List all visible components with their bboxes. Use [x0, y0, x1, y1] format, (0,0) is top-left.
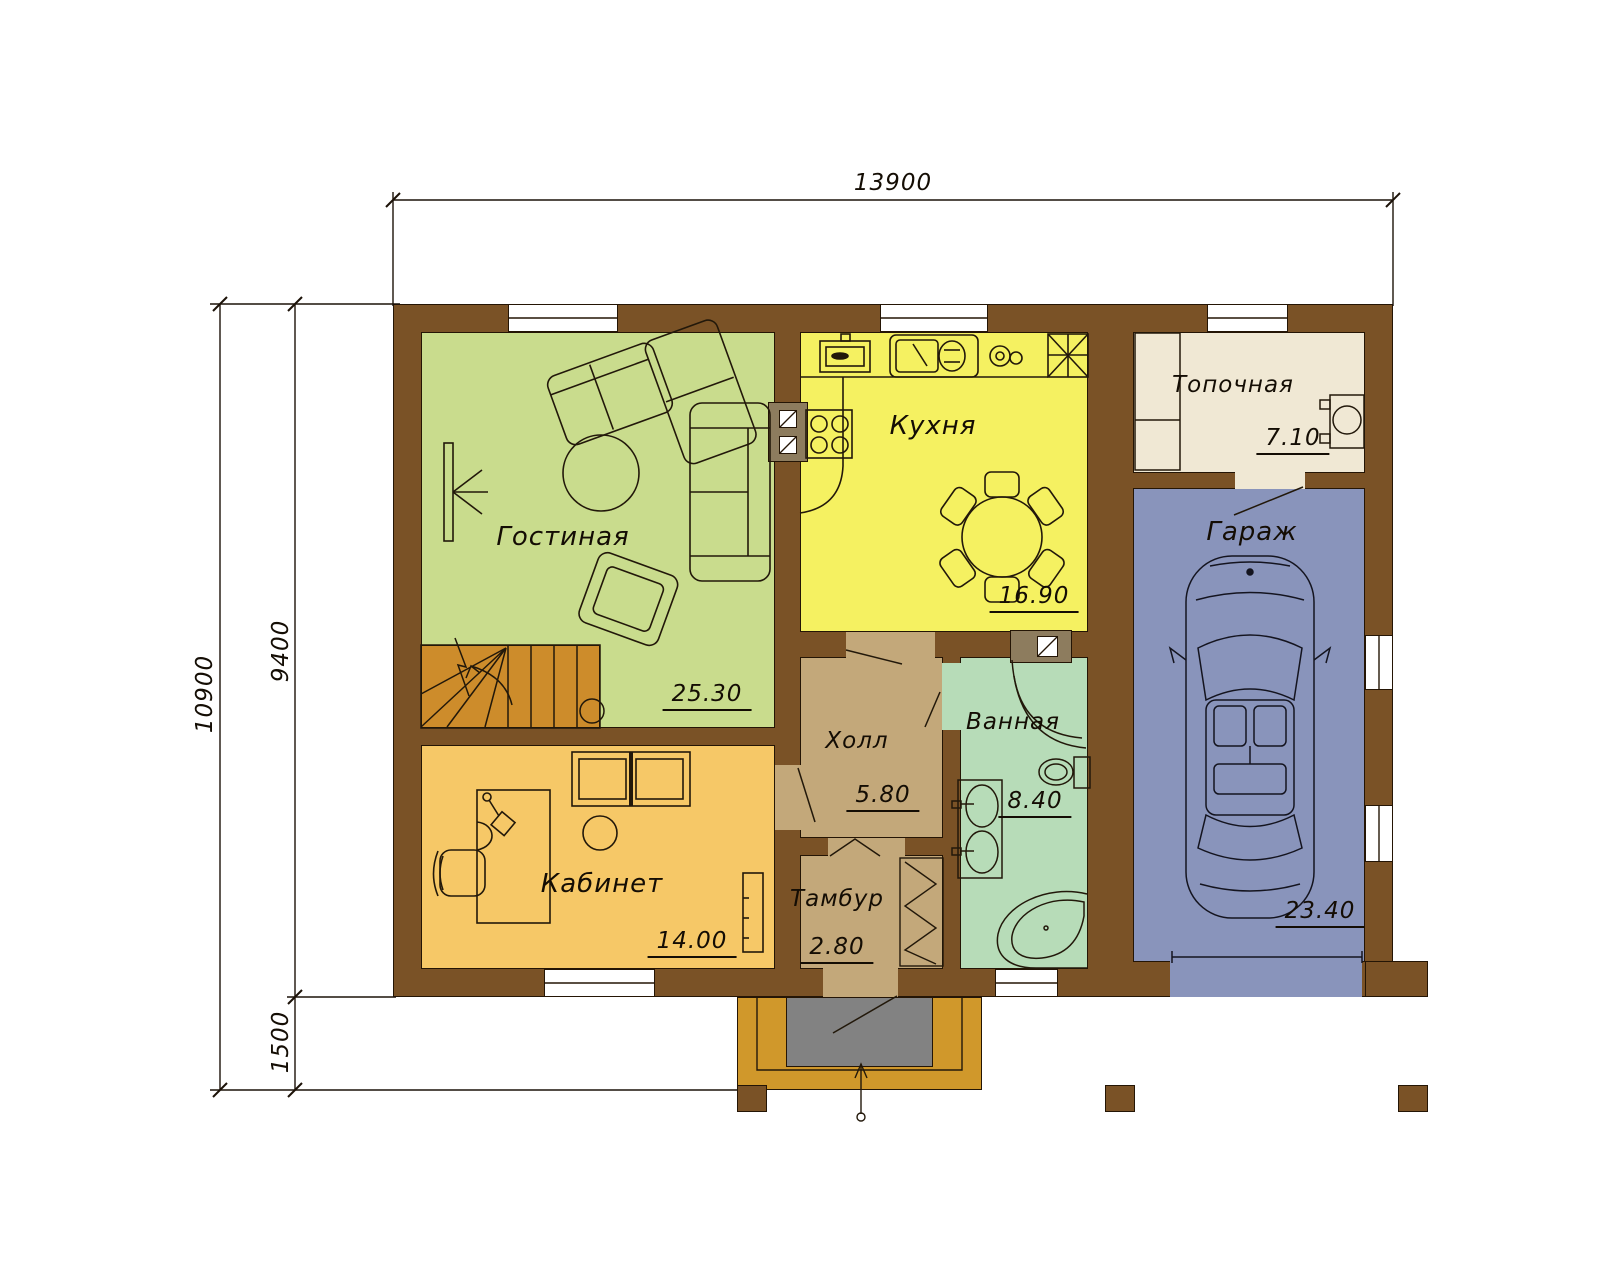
area-boiler: 7.10: [1256, 425, 1329, 451]
area-garage: 23.40: [1276, 898, 1365, 924]
area-value: 14.00: [648, 928, 737, 958]
staircase-floor: [421, 645, 600, 728]
window-boiler: [1207, 304, 1288, 332]
room-garage-floor: [1133, 488, 1365, 962]
label-boiler: Топочная: [1172, 372, 1294, 398]
area-bathroom: 8.40: [998, 788, 1071, 814]
area-value: 7.10: [1256, 425, 1329, 455]
area-office: 14.00: [648, 928, 737, 954]
room-boiler-floor: [1133, 332, 1365, 473]
dim-porch-depth: 1500: [268, 1011, 294, 1074]
label-living: Гостиная: [496, 522, 629, 552]
dim-height-main: 9400: [268, 620, 294, 683]
floor-plan-drawing: 13900 10900 9400 1500 Гостиная 25.30 Кух…: [0, 0, 1600, 1280]
window-kitchen: [880, 304, 988, 332]
window-living: [508, 304, 618, 332]
vent-grate-icon: [1037, 636, 1058, 657]
area-value: 16.90: [990, 583, 1079, 613]
label-kitchen: Кухня: [890, 411, 977, 441]
window-bathroom: [995, 969, 1058, 997]
door-hall-office: [775, 765, 801, 830]
dim-height-total: 10900: [192, 655, 218, 733]
area-value: 23.40: [1276, 898, 1365, 928]
door-boiler-garage: [1235, 472, 1305, 489]
porch-pillar: [737, 1085, 767, 1112]
area-kitchen: 16.90: [990, 583, 1079, 609]
garage-corner-pier: [1365, 961, 1428, 997]
entrance-landing: [786, 997, 933, 1067]
area-hall: 5.80: [846, 782, 919, 808]
door-hall-vestibule: [828, 838, 905, 856]
vent-grate-icon: [779, 436, 797, 454]
area-living: 25.30: [663, 681, 752, 707]
area-value: 2.80: [800, 934, 873, 964]
area-value: 5.80: [846, 782, 919, 812]
area-value: 8.40: [998, 788, 1071, 818]
window-office: [544, 969, 655, 997]
garage-gate-opening: [1170, 961, 1362, 997]
vent-grate-icon: [779, 410, 797, 428]
free-pillar-left: [1105, 1085, 1135, 1112]
free-pillar-right: [1398, 1085, 1428, 1112]
label-office: Кабинет: [541, 869, 663, 899]
window-garage-2: [1365, 805, 1393, 862]
area-vestibule: 2.80: [800, 934, 873, 960]
area-value: 25.30: [663, 681, 752, 711]
door-entrance: [823, 968, 898, 997]
door-kitchen-hall: [846, 632, 935, 658]
door-hall-bathroom: [942, 663, 961, 730]
label-bathroom: Ванная: [966, 709, 1060, 735]
label-garage: Гараж: [1206, 517, 1297, 547]
window-garage-1: [1365, 635, 1393, 690]
label-hall: Холл: [825, 728, 888, 754]
dim-width-total: 13900: [854, 170, 932, 196]
label-vestibule: Тамбур: [790, 886, 884, 912]
